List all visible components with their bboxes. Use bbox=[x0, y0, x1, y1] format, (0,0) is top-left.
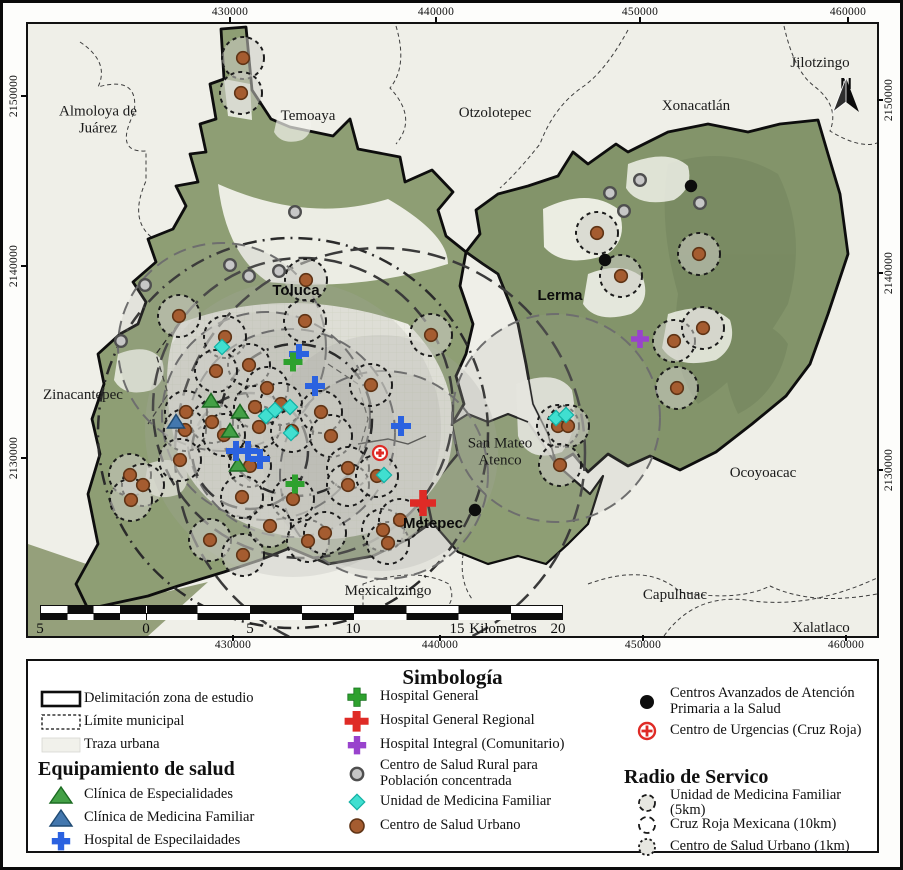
gray-circle-icon bbox=[334, 763, 380, 785]
axis-label: 2130000 bbox=[8, 437, 20, 479]
legend-item-umf: Unidad de Medicina Familiar bbox=[334, 790, 626, 814]
red-cross-icon bbox=[334, 709, 380, 733]
legend-label: Centro de Salud Rural para Población con… bbox=[380, 758, 538, 788]
red-circle-cross-icon bbox=[624, 719, 670, 743]
municipal-limit-swatch-icon bbox=[38, 712, 84, 732]
urban-trace-swatch-icon bbox=[38, 735, 84, 755]
legend-item-clinica-especialidades: Clínica de Especialidades bbox=[38, 783, 338, 806]
legend-label: Delimitación zona de estudio bbox=[84, 691, 254, 706]
legend-column-right: Centros Avanzados de Atención Primaria a… bbox=[624, 685, 876, 858]
legend-label: Límite municipal bbox=[84, 714, 184, 729]
blue-triangle-icon bbox=[38, 808, 84, 828]
legend-label: Clínica de Especialidades bbox=[84, 787, 233, 802]
legend-label: Cruz Roja Mexicana (10km) bbox=[670, 817, 836, 832]
legend-item-cruz-roja: Centro de Urgencias (Cruz Roja) bbox=[624, 718, 876, 744]
legend-item-radio-umf: Unidad de Medicina Familiar (5km) bbox=[624, 792, 876, 814]
north-arrow: N bbox=[828, 76, 864, 134]
legend-item-centro-rural: Centro de Salud Rural para Población con… bbox=[334, 757, 626, 790]
purple-cross-icon bbox=[334, 734, 380, 756]
legend-item-zone: Delimitación zona de estudio bbox=[38, 687, 338, 710]
dotted-circle-filled-icon bbox=[624, 836, 670, 858]
legend-label: Clínica de Medicina Familiar bbox=[84, 810, 254, 825]
legend-label: Hospital de Especilaidades bbox=[84, 833, 240, 848]
legend-column-left: Delimitación zona de estudio Límite muni… bbox=[38, 687, 338, 852]
legend-column-middle: Hospital General Hospital General Region… bbox=[334, 685, 626, 838]
legend-item-radio-csu: Centro de Salud Urbano (1km) bbox=[624, 836, 876, 858]
cyan-diamond-icon bbox=[334, 791, 380, 813]
axis-label: 2140000 bbox=[883, 252, 895, 294]
blue-cross-icon bbox=[38, 830, 84, 852]
map-area: Almoloya de JuárezTemoayaOtzolotepecXona… bbox=[26, 22, 879, 638]
green-triangle-icon bbox=[38, 785, 84, 805]
scale-bar-label: 20 bbox=[551, 621, 566, 638]
legend-item-limite: Límite municipal bbox=[38, 710, 338, 733]
dashed-circle-filled-icon bbox=[624, 792, 670, 814]
green-cross-icon bbox=[334, 686, 380, 708]
legend-label: Centros Avanzados de Atención Primaria a… bbox=[670, 686, 855, 716]
scale-bar-label: 15 bbox=[450, 621, 465, 638]
legend-label: Centro de Salud Urbano bbox=[380, 818, 521, 833]
legend-label: Centro de Urgencias (Cruz Roja) bbox=[670, 723, 861, 738]
legend-label: Centro de Salud Urbano (1km) bbox=[670, 839, 850, 854]
legend-box: Simbología Delimitación zona de estudio … bbox=[26, 659, 879, 853]
scale-bar-label: 10 bbox=[346, 621, 361, 638]
axis-label: 2150000 bbox=[8, 75, 20, 117]
legend-label: Hospital General bbox=[380, 689, 479, 704]
scale-bar-label: 0 bbox=[142, 621, 150, 638]
study-zone-swatch-icon bbox=[38, 689, 84, 709]
axis-label: 2140000 bbox=[8, 245, 20, 287]
legend-item-hospital-especialidades: Hospital de Especilaidades bbox=[38, 829, 338, 852]
scale-bar-label: Kilometros bbox=[469, 621, 537, 638]
legend-label: Hospital Integral (Comunitario) bbox=[380, 737, 564, 752]
north-arrow-icon bbox=[828, 76, 864, 116]
legend-subheader: Equipamiento de salud bbox=[38, 756, 338, 783]
scale-bar-label: 5 bbox=[36, 621, 44, 638]
scale-bar bbox=[40, 605, 563, 620]
map-figure-page: Almoloya de JuárezTemoayaOtzolotepecXona… bbox=[0, 0, 903, 870]
legend-spacer bbox=[624, 744, 876, 762]
legend-item-csu: Centro de Salud Urbano bbox=[334, 814, 626, 838]
legend-item-caaps: Centros Avanzados de Atención Primaria a… bbox=[624, 685, 876, 718]
legend-item-hospital-regional: Hospital General Regional bbox=[334, 709, 626, 733]
legend-item-hospital-integral: Hospital Integral (Comunitario) bbox=[334, 733, 626, 757]
axis-label: 2130000 bbox=[883, 449, 895, 491]
dashed-circle-icon bbox=[624, 814, 670, 836]
black-dot-icon bbox=[624, 691, 670, 713]
legend-item-clinica-medicina: Clínica de Medicina Familiar bbox=[38, 806, 338, 829]
legend-label: Unidad de Medicina Familiar bbox=[380, 794, 551, 809]
legend-label: Unidad de Medicina Familiar (5km) bbox=[670, 788, 876, 818]
legend-label: Traza urbana bbox=[84, 737, 160, 752]
map-canvas bbox=[28, 24, 877, 636]
legend-item-traza: Traza urbana bbox=[38, 733, 338, 756]
legend-item-hospital-general: Hospital General bbox=[334, 685, 626, 709]
axis-label: 2150000 bbox=[883, 79, 895, 121]
legend-label: Hospital General Regional bbox=[380, 713, 535, 728]
scale-bar-label: 5 bbox=[246, 621, 254, 638]
brown-circle-icon bbox=[334, 815, 380, 837]
